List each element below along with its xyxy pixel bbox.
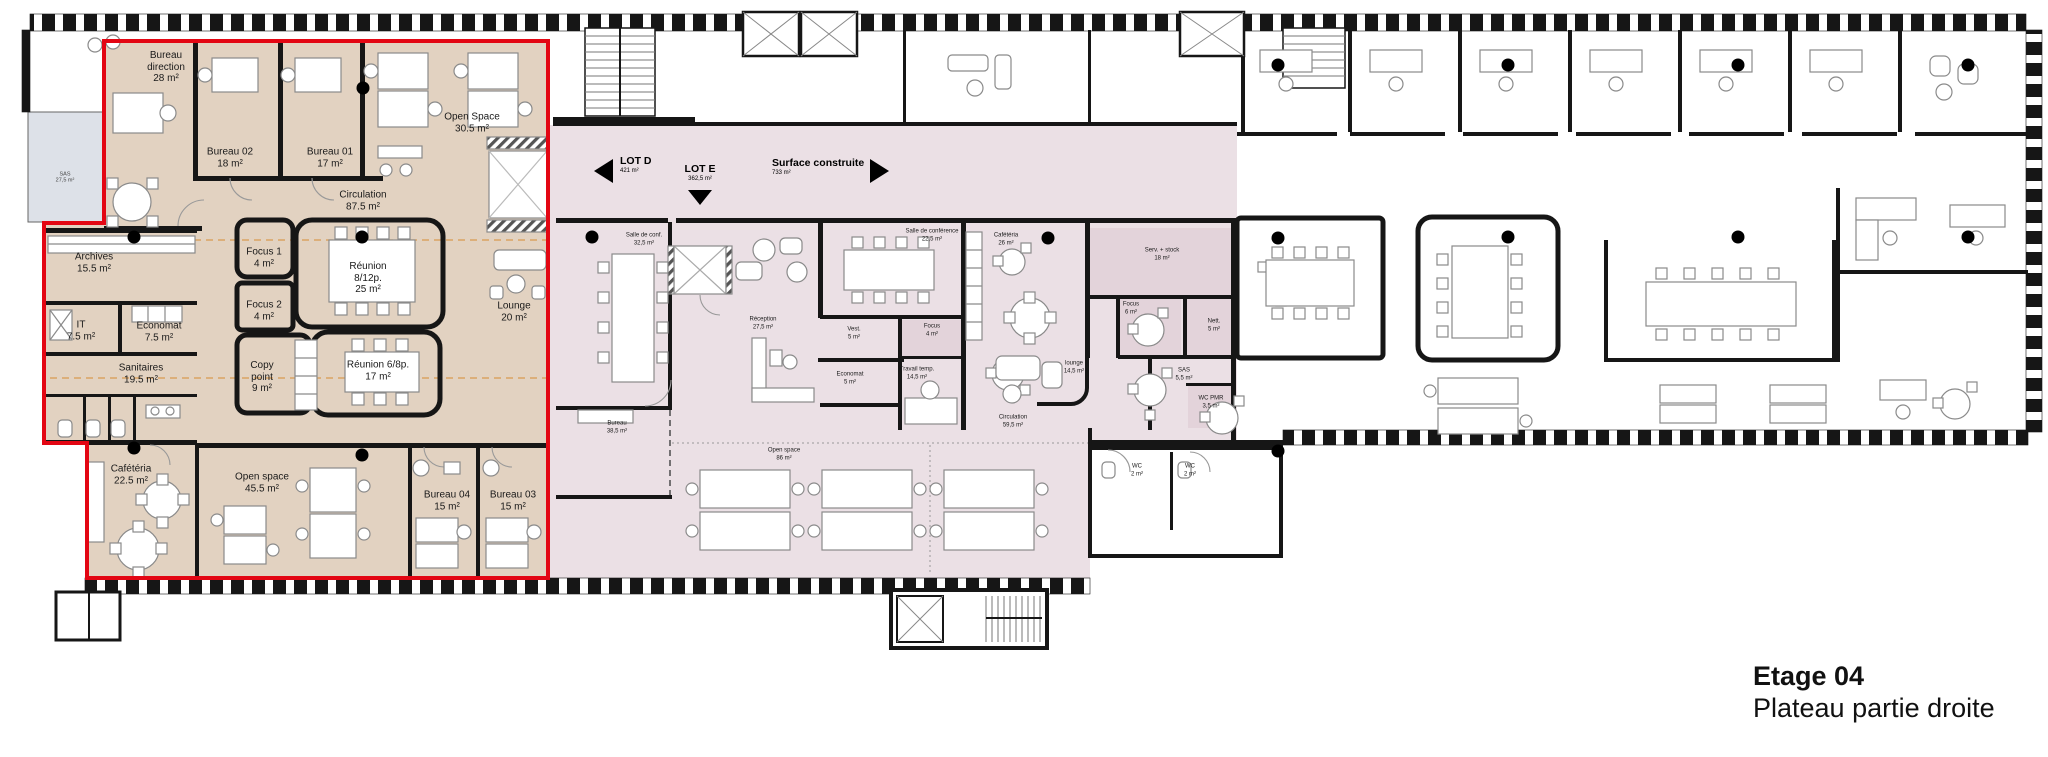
stair-top-left: [585, 28, 655, 116]
floor-subtitle: Plateau partie droite: [1753, 692, 1995, 724]
room-label-serv-stock: Serv. + stock18 m²: [1145, 248, 1179, 263]
room-label-bureau-385: Bureau38,5 m²: [607, 421, 627, 436]
room-label-circulation: Circulation87.5 m²: [339, 190, 386, 213]
room-label-focus-1: Focus 14 m²: [246, 247, 282, 270]
room-label-travail-temp: Travail temp.14,5 m²: [900, 367, 934, 382]
room-label-salle-conf: Salle de conf.32,5 m²: [626, 233, 662, 248]
room-label-open-space-45: Open space45.5 m²: [235, 472, 289, 495]
room-label-focus-2: Focus 24 m²: [246, 300, 282, 323]
annex-block-bottom-left: [56, 592, 120, 640]
room-label-lounge: Lounge20 m²: [497, 301, 530, 324]
room-label-bureau-direction: Bureau direction28 m²: [135, 50, 197, 85]
room-label-cafeteria-26: Cafétéria26 m²: [994, 233, 1018, 248]
room-label-focus-6: Focus6 m²: [1123, 302, 1139, 317]
room-label-sas-annex: SAS27,5 m²: [56, 172, 75, 185]
surface-construite-arrow-icon: [870, 159, 889, 183]
room-label-economat: Economat7.5 m²: [136, 321, 181, 344]
room-label-wc-pmr: WC PMR3,5 m²: [1199, 396, 1224, 411]
room-label-focus-4: Focus4 m²: [924, 324, 940, 339]
surface-construite-marker: Surface construite 733 m²: [772, 158, 864, 176]
lot-e-arrow-icon: [688, 190, 712, 205]
lot-e-marker: LOT E 362,5 m²: [685, 164, 716, 182]
room-label-sanitaires: Sanitaires19.5 m²: [119, 363, 163, 386]
room-label-bureau-04: Bureau 0415 m²: [424, 490, 470, 513]
lot-d-marker: LOT D 421 m²: [620, 156, 652, 174]
room-label-copy-point: Copy point9 m²: [244, 360, 280, 395]
room-label-reception: Réception27,5 m²: [749, 317, 776, 332]
floor-plan-svg: [0, 0, 2048, 757]
floor-plan: Bureau direction28 m² Bureau 0218 m² Bur…: [0, 0, 2048, 757]
room-label-sas-55: SAS5,5 m²: [1175, 368, 1192, 383]
room-label-bureau-03: Bureau 0315 m²: [490, 490, 536, 513]
room-label-open-space-86: Open space86 m²: [768, 448, 800, 463]
room-label-reunion-8-12: Réunion8/12p.25 m²: [349, 261, 386, 296]
plan-title: Etage 04 Plateau partie droite: [1753, 660, 1995, 725]
room-label-archives: Archives15.5 m²: [75, 252, 113, 275]
room-label-nettoyage: Nett.5 m²: [1208, 319, 1221, 334]
room-label-bureau-02: Bureau 0218 m²: [207, 147, 253, 170]
room-label-economat-5: Economat5 m²: [836, 372, 863, 387]
stair-block-bottom: [891, 590, 1047, 648]
zone-annex-sas: [28, 112, 104, 222]
room-label-wc-2: WC2 m²: [1184, 464, 1196, 479]
room-label-wc-1: WC2 m²: [1131, 464, 1143, 479]
room-label-cafeteria-22: Cafétéria22.5 m²: [111, 464, 152, 487]
room-label-vestiaire: Vest.5 m²: [847, 327, 860, 342]
room-label-it: IT7.5 m²: [67, 320, 95, 343]
room-label-circulation-595: Circulation59,5 m²: [999, 415, 1027, 430]
room-label-bureau-01: Bureau 0117 m²: [307, 147, 353, 170]
room-label-salle-conference: Salle de conférence22,5 m²: [905, 229, 958, 244]
floor-title: Etage 04: [1753, 660, 1995, 692]
room-label-lounge-145: lounge14,5 m²: [1064, 361, 1084, 376]
room-label-open-space-30: Open Space30.5 m²: [444, 112, 500, 135]
lot-d-arrow-icon: [594, 159, 613, 183]
room-label-reunion-6-8: Réunion 6/8p.17 m²: [347, 360, 409, 383]
